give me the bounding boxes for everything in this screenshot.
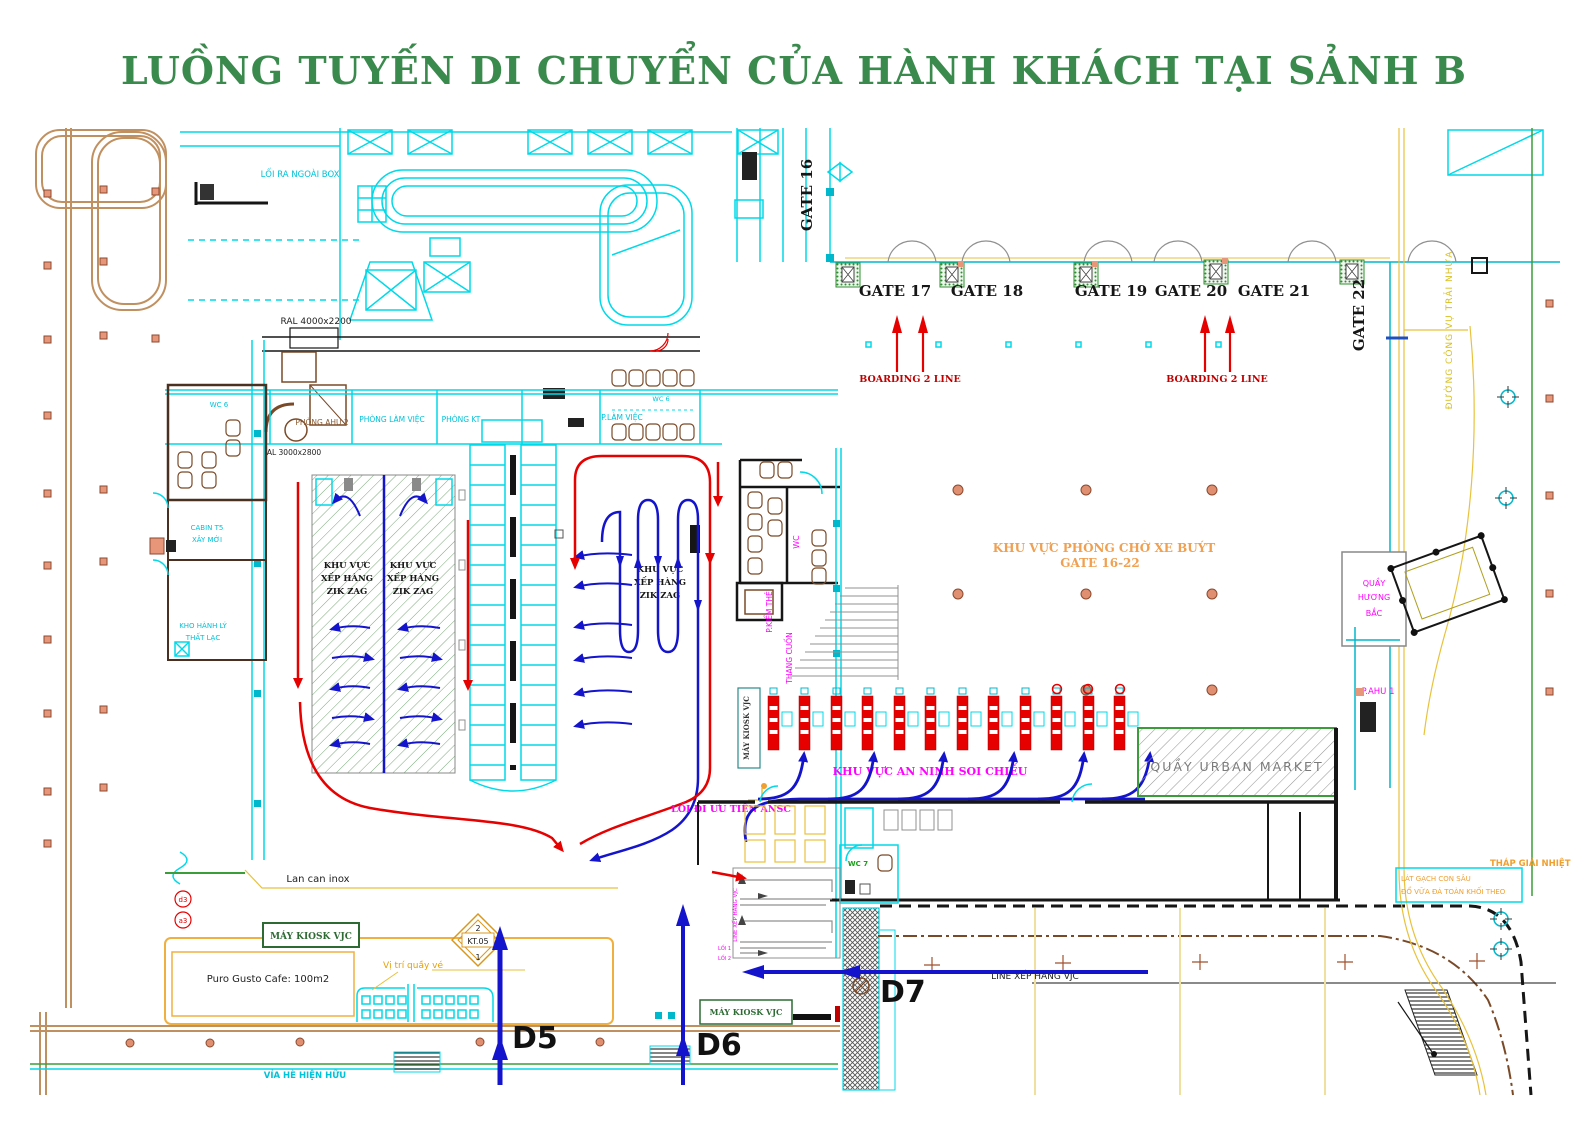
wc-mid-label: WC xyxy=(792,535,801,549)
page-title: LUỒNG TUYẾN DI CHUYỂN CỦA HÀNH KHÁCH TẠI… xyxy=(0,48,1588,93)
queue-lane2-label: LỐI 2 xyxy=(718,954,731,962)
zigzag-left-label-3: ZIK ZAG xyxy=(327,587,368,597)
kt05-bottom-label: 1 xyxy=(475,953,480,962)
floor-plan-drawing: RAL 4000x2200 LỐI RA NGOÀI BOX PHÒNG AHU… xyxy=(0,0,1588,1123)
zigzag-right-label-3: ZIK ZAG xyxy=(393,587,434,597)
kt05-label: KT.05 xyxy=(467,937,488,946)
gate-16-label: GATE 16 xyxy=(798,159,816,231)
huong-bac-label-2: HƯƠNG xyxy=(1358,593,1390,602)
boarding-2line-label-1: BOARDING 2 LINE xyxy=(859,374,961,385)
kt05-top-label: 2 xyxy=(475,924,480,933)
boarding-2line-label-2: BOARDING 2 LINE xyxy=(1166,374,1268,385)
cooling-tower-label: THÁP GIẢI NHIỆT xyxy=(1490,857,1571,869)
gate-17-label: GATE 17 xyxy=(859,282,931,300)
toilet-stalls-right xyxy=(612,370,695,440)
wc7-label: WC 7 xyxy=(848,860,868,868)
urban-market-zone: QUẦY URBAN MARKET xyxy=(698,728,1340,900)
p-ahu1-label: P.AHU 1 xyxy=(1361,687,1394,697)
wc6-right-label: WC 6 xyxy=(652,395,669,403)
bus-waiting-area: KHU VỰC PHÒNG CHỜ XE BUÝT GATE 16-22 xyxy=(953,485,1217,695)
floor-plan-page: LUỒNG TUYẾN DI CHUYỂN CỦA HÀNH KHÁCH TẠI… xyxy=(0,0,1588,1123)
paving-note-line2: ĐỔ VỮA ĐÁ TOÀN KHỐI THEO xyxy=(1401,886,1506,896)
ahu2-room-label: PHÒNG AHU 2 xyxy=(295,418,349,427)
marker-d3-label: d3 xyxy=(179,896,188,904)
boarding-lines: BOARDING 2 LINE BOARDING 2 LINE xyxy=(859,315,1268,385)
queue-lane1-label: LỐI 1 xyxy=(718,944,731,952)
central-core-rooms: WC P.KIỂM THẺ THANG CUỐN xyxy=(737,448,898,958)
service-road-label: ĐƯỜNG CÔNG VỤ TRẢI NHỰA xyxy=(1443,251,1455,410)
card-check-room-label: P.KIỂM THẺ xyxy=(764,591,774,633)
gate-18-label: GATE 18 xyxy=(951,282,1023,300)
huong-bac-kiosk: QUẦY HƯƠNG BẮC P.AHU 1 xyxy=(1342,531,1509,790)
security-area-label: KHU VỰC AN NINH SOI CHIẾU xyxy=(833,763,1028,778)
zigzag-mid-label-3: ZIK ZAG xyxy=(640,591,681,601)
bottom-site-boundary: LINE XẾP HÀNG VJC xyxy=(878,906,1556,1095)
checkin-counters xyxy=(459,420,556,791)
gate-22-label: GATE 22 xyxy=(1350,279,1368,351)
road-stairs-hatch xyxy=(1398,990,1477,1075)
office-room-label: PHÒNG LÀM VIỆC xyxy=(359,415,425,424)
door-d6-label: D6 xyxy=(696,1028,742,1063)
gate-20-label: GATE 20 xyxy=(1155,282,1227,300)
marker-a3-label: a3 xyxy=(179,917,188,925)
cafe-label: Puro Gusto Cafe: 100m2 xyxy=(207,974,329,985)
sidewalk-label: VỈA HÈ HIỆN HỮU xyxy=(264,1069,347,1081)
urban-market-label: QUẦY URBAN MARKET xyxy=(1150,758,1323,774)
escalator-stairs xyxy=(790,585,898,680)
wc6-left-label: WC 6 xyxy=(210,401,229,409)
lan-can-inox-label: Lan can inox xyxy=(286,874,349,885)
left-service-rooms: WC 6 CABIN T5 XÂY MỚI KHO HÀNH LÝ THẤT L… xyxy=(150,385,266,660)
main-flow-arrows: D5 D6 D7 xyxy=(492,904,1148,1085)
kiosk-box2-label: MÁY KIOSK VJC xyxy=(710,1007,783,1017)
al-size-label: AL 3000x2800 xyxy=(267,448,322,457)
zigzag-left-label-1: KHU VỰC xyxy=(324,559,371,571)
priority-lane-label: LỐI ĐI ƯU TIÊN ANSC xyxy=(671,802,791,815)
door-d7-label: D7 xyxy=(880,975,926,1010)
cabin-room-label-2: XÂY MỚI xyxy=(192,535,222,544)
p-office-room-label: P.LÀM VIỆC xyxy=(601,413,642,422)
zigzag-queue-area: KHU VỰC XẾP HÀNG ZIK ZAG KHU VỰC XẾP HÀN… xyxy=(312,475,455,773)
lost-luggage-label-1: KHO HÀNH LÝ xyxy=(179,621,227,630)
zigzag-right-label-1: KHU VỰC xyxy=(390,559,437,571)
bus-wait-label-1: KHU VỰC PHÒNG CHỜ XE BUÝT xyxy=(993,539,1215,555)
door-d5-label: D5 xyxy=(512,1021,558,1056)
gate-19-label: GATE 19 xyxy=(1075,282,1147,300)
kiosk-vertical-label: MÁY KIOSK VJC xyxy=(742,696,751,760)
lost-luggage-label-2: THẤT LẠC xyxy=(185,632,221,642)
kiosk-box1-label: MÁY KIOSK VJC xyxy=(270,930,352,942)
ral-size-label: RAL 4000x2200 xyxy=(280,317,351,327)
left-curbside-roads xyxy=(36,128,166,1095)
gate-21-label: GATE 21 xyxy=(1238,282,1310,300)
service-road-right: ĐƯỜNG CÔNG VỤ TRẢI NHỰA THÁP GIẢI NHIỆT … xyxy=(1386,128,1571,1095)
technical-room-label: PHÒNG KT xyxy=(442,415,481,424)
security-screening-area: MÁY KIOSK VJC KHU VỰC AN NINH SOI CHIẾU … xyxy=(671,685,1150,843)
bus-wait-label-2: GATE 16-22 xyxy=(1060,556,1140,570)
gates-wall: GATE 16 GATE 17 GATE 18 GATE 19 GATE 2 xyxy=(735,128,1560,788)
ticket-counter-label: Vị trí quầy vé xyxy=(383,960,444,971)
exit-box-label: LỐI RA NGOÀI BOX xyxy=(261,167,340,180)
paving-note-line1: LÁT GẠCH CON SÂU xyxy=(1401,874,1471,883)
escalator-label: THANG CUỐN xyxy=(784,632,794,684)
queue-area-vertical-label: LINE XẾP HÀNG VJC xyxy=(731,888,739,942)
cabin-room-label-1: CABIN T5 xyxy=(191,524,224,532)
